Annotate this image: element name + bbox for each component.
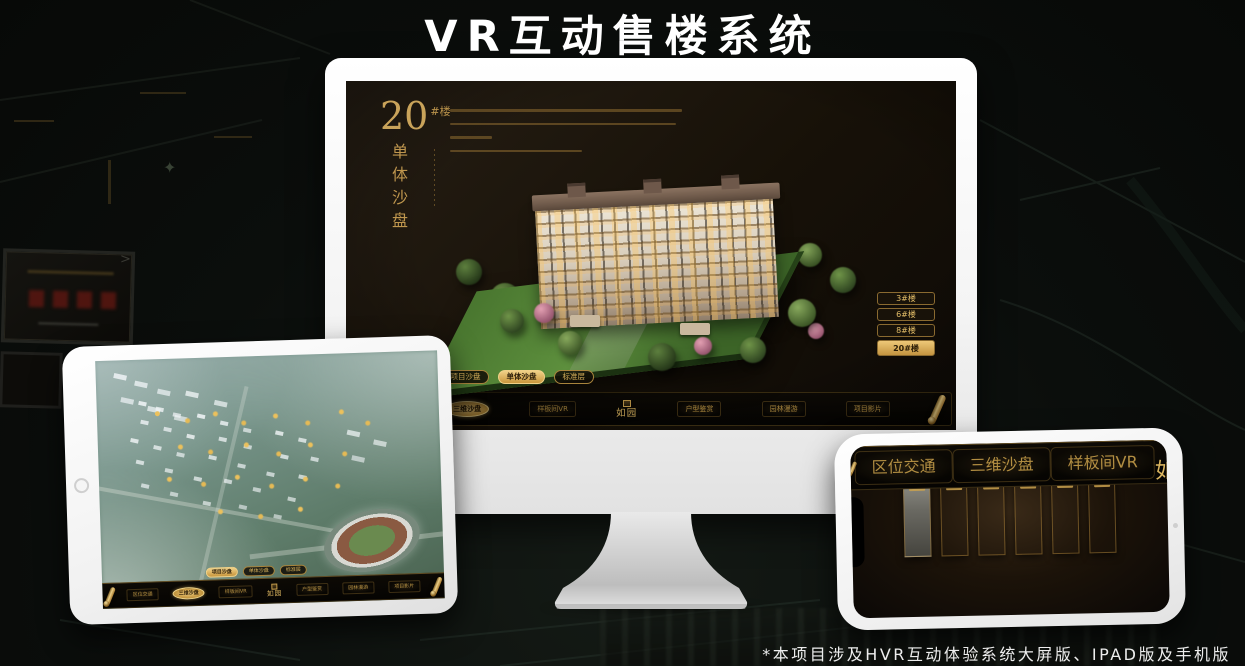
home-button[interactable]	[74, 478, 89, 493]
scroll-menu-icon[interactable]	[928, 394, 947, 424]
map-label-decor	[108, 160, 111, 204]
map-label-decor	[214, 136, 252, 138]
page: > ✦ VR互动售楼系统 20 #楼 单体沙盘	[0, 0, 1245, 666]
tablet-screen: 项目沙盘 单体沙盘 标准层 区位交通 三维沙盘 样板间VR 如园 户型鉴赏 园林…	[95, 350, 445, 609]
floor-button-group: 3#楼 6#楼 8#楼 20#楼	[877, 292, 935, 359]
scroll-menu-icon[interactable]	[431, 576, 443, 595]
building-number-unit: #楼	[430, 103, 450, 119]
tab-single-sandbox[interactable]: 单体沙盘	[243, 566, 275, 577]
nav-unit-gallery[interactable]: 户型鉴赏	[677, 401, 721, 417]
project-logo: 如园	[616, 400, 637, 418]
nav-garden-roam[interactable]: 园林漫游	[762, 401, 806, 417]
nav-3d-sandbox[interactable]: 三维沙盘	[952, 447, 1051, 483]
tab-standard-floor[interactable]: 标准层	[280, 565, 307, 576]
tablet-bezel: 项目沙盘 单体沙盘 标准层 区位交通 三维沙盘 样板间VR 如园 户型鉴赏 园林…	[62, 335, 459, 625]
building-number: 20	[380, 97, 428, 135]
phone-notch	[851, 497, 864, 567]
floor-button-6[interactable]: 6#楼	[877, 308, 935, 321]
building-description-lines	[450, 109, 682, 163]
map-label-decor	[140, 92, 186, 94]
heading-vertical-label: 单体沙盘	[386, 143, 410, 261]
scroll-menu-icon[interactable]	[104, 586, 116, 605]
nav-project-film[interactable]: 项目影片	[388, 580, 420, 593]
nav-showroom-vr[interactable]: 样板间VR	[1050, 445, 1155, 481]
nav-showroom-vr[interactable]: 样板间VR	[219, 585, 253, 598]
project-logo: 如园	[267, 584, 283, 598]
aerial-buildings	[138, 401, 147, 406]
tab-project-sandbox[interactable]: 项目沙盘	[206, 567, 238, 578]
aerial-buildings-large	[113, 373, 127, 380]
monitor-stand	[541, 512, 761, 618]
heading-divider	[434, 149, 435, 209]
compass-icon: ✦	[163, 158, 176, 177]
building-number-markers	[155, 411, 160, 416]
page-title: VR互动售楼系统	[0, 2, 1245, 64]
map-label-decor	[14, 120, 54, 122]
building-model-viewport[interactable]	[442, 147, 882, 377]
front-camera-icon	[1173, 523, 1178, 528]
building-heading: 20 #楼 单体沙盘	[380, 97, 451, 261]
phone-navbar: 区位交通 三维沙盘 样板间VR 如园 户型鉴赏 园林漫游 项目影片	[850, 440, 1170, 491]
sandbox-tab-row: 项目沙盘 单体沙盘 标准层	[442, 370, 594, 384]
logo-seal-icon	[1169, 440, 1170, 458]
logo-seal-icon	[623, 400, 631, 408]
nav-showroom-vr[interactable]: 样板间VR	[529, 401, 576, 417]
nav-project-film[interactable]: 项目影片	[846, 401, 890, 417]
project-logo: 如园	[1154, 440, 1169, 483]
tab-standard-floor[interactable]: 标准层	[554, 370, 594, 384]
tab-single-sandbox[interactable]: 单体沙盘	[498, 370, 545, 384]
floor-button-20[interactable]: 20#楼	[877, 340, 935, 356]
nav-unit-gallery[interactable]: 户型鉴赏	[296, 583, 328, 596]
nav-location-traffic[interactable]: 区位交通	[854, 449, 953, 485]
tablet-device: 项目沙盘 单体沙盘 标准层 区位交通 三维沙盘 样板间VR 如园 户型鉴赏 园林…	[62, 335, 459, 625]
nav-location-traffic[interactable]: 区位交通	[126, 588, 158, 601]
honor-plaque-partial	[0, 351, 63, 409]
phone-device: 区位交通 三维沙盘 样板间VR 如园 户型鉴赏 园林漫游 项目影片	[834, 427, 1186, 630]
floor-button-3[interactable]: 3#楼	[877, 292, 935, 305]
chevron-decor: >	[120, 252, 131, 267]
nav-garden-roam[interactable]: 园林漫游	[342, 581, 374, 594]
floor-button-8[interactable]: 8#楼	[877, 324, 935, 337]
footnote: *本项目涉及HVR互动体验系统大屏版、IPAD版及手机版	[762, 641, 1231, 665]
stadium	[317, 498, 428, 582]
phone-screen: 区位交通 三维沙盘 样板间VR 如园 户型鉴赏 园林漫游 项目影片	[850, 440, 1170, 619]
phone-bezel: 区位交通 三维沙盘 样板间VR 如园 户型鉴赏 园林漫游 项目影片	[834, 427, 1186, 630]
nav-3d-sandbox[interactable]: 三维沙盘	[173, 587, 205, 600]
honor-plaque	[1, 248, 135, 345]
model-building	[535, 199, 779, 329]
